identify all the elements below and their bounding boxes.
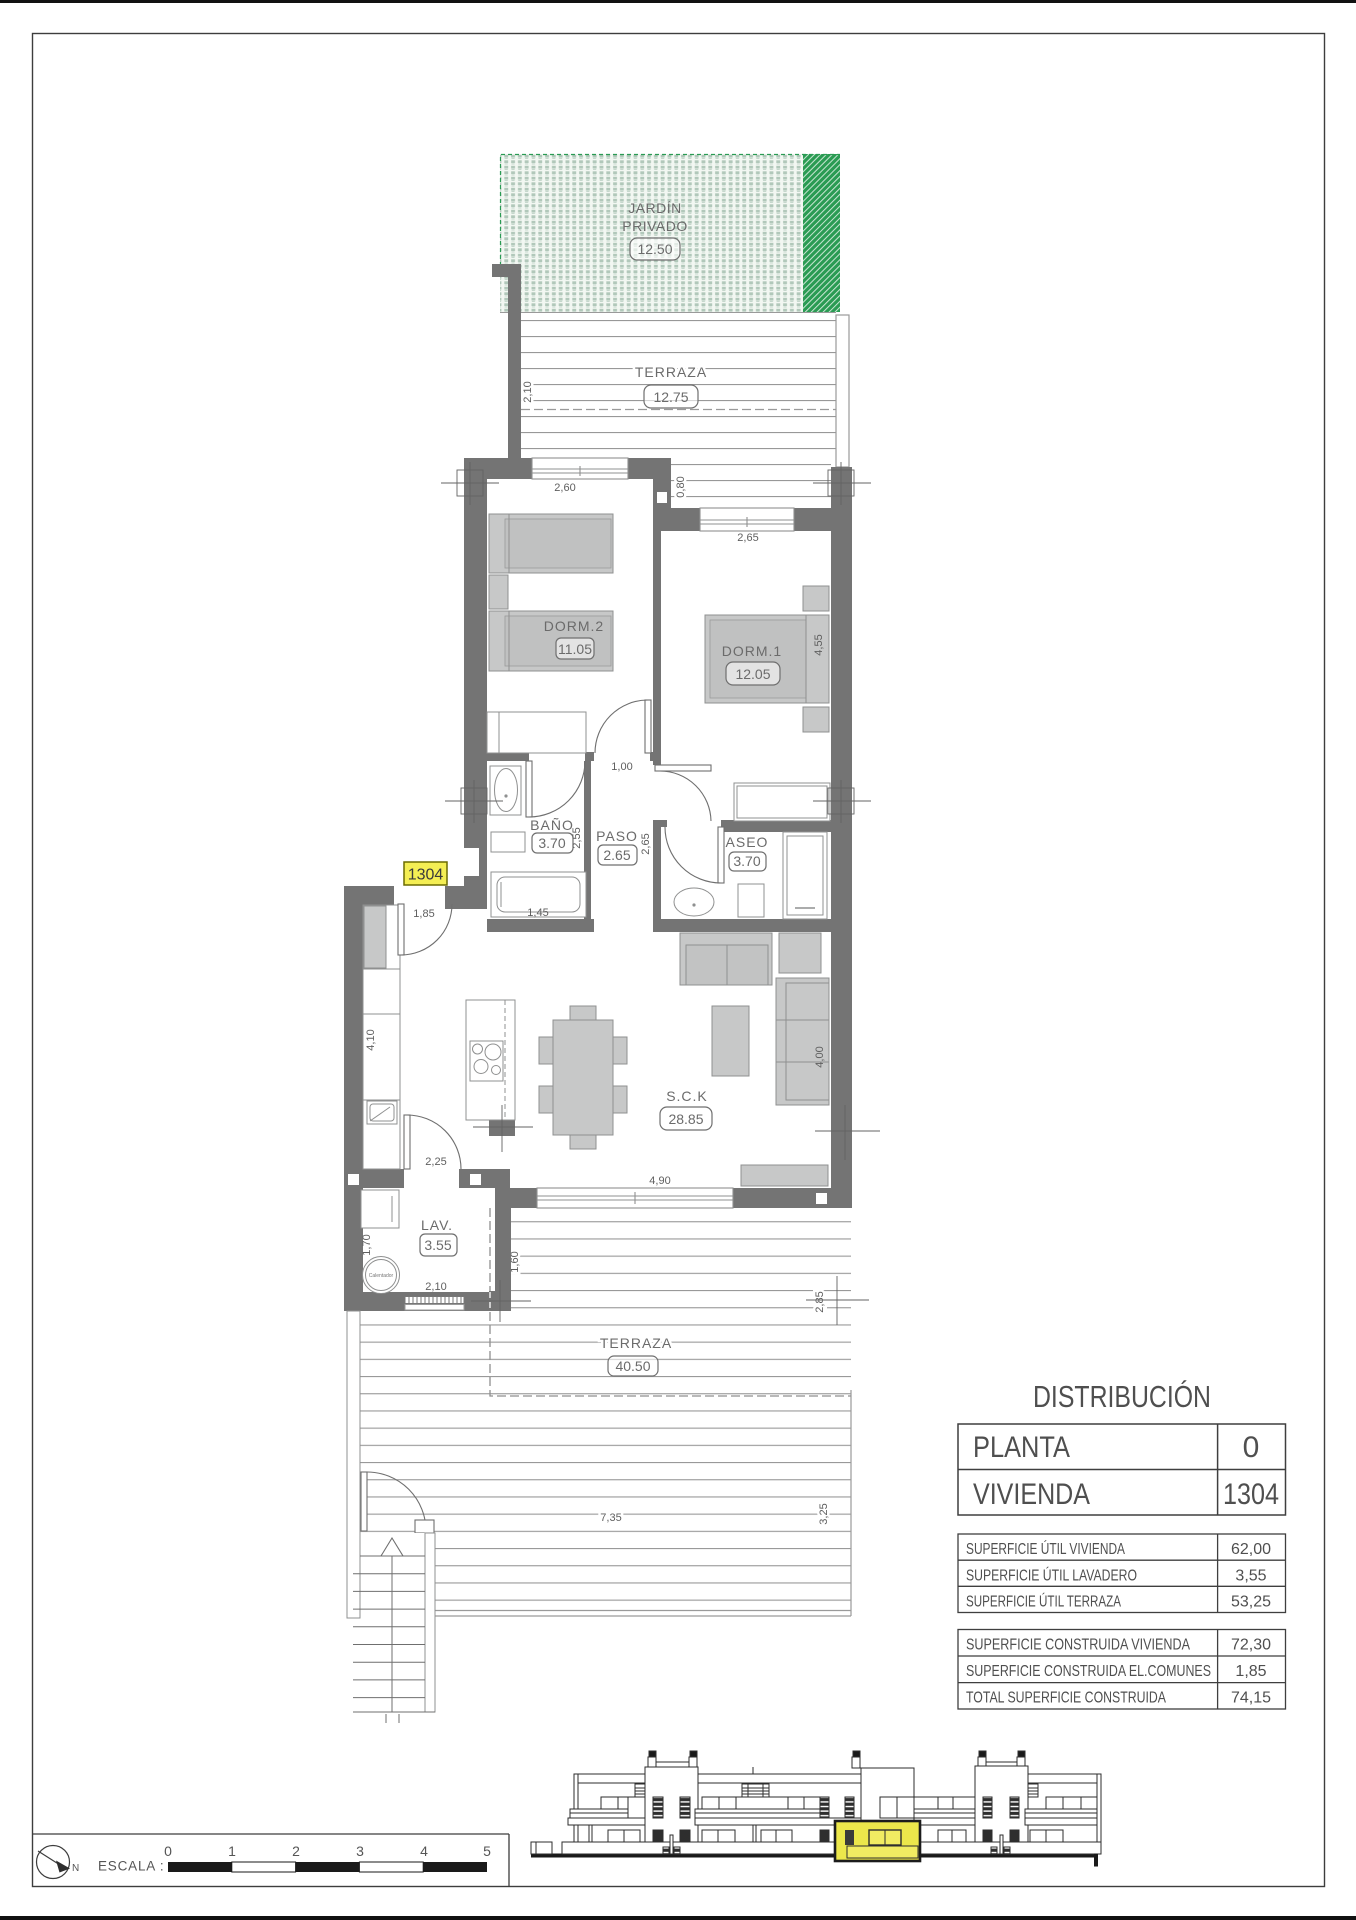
svg-text:ESCALA :: ESCALA : [98, 1859, 164, 1874]
svg-text:62,00: 62,00 [1231, 1541, 1271, 1558]
svg-text:12.50: 12.50 [637, 241, 672, 257]
svg-text:3,25: 3,25 [818, 1503, 830, 1524]
svg-text:0: 0 [1243, 1431, 1260, 1464]
svg-text:74,15: 74,15 [1231, 1689, 1271, 1706]
svg-text:4,90: 4,90 [649, 1175, 670, 1187]
svg-text:53,25: 53,25 [1231, 1594, 1271, 1611]
svg-text:2,85: 2,85 [814, 1291, 826, 1312]
svg-text:4,10: 4,10 [365, 1029, 377, 1050]
svg-text:SUPERFICIE ÚTIL VIVIENDA: SUPERFICIE ÚTIL VIVIENDA [966, 1539, 1125, 1558]
svg-text:N: N [72, 1863, 79, 1874]
svg-text:Calentador: Calentador [369, 1273, 394, 1279]
svg-text:3.55: 3.55 [424, 1237, 451, 1253]
svg-text:28.85: 28.85 [668, 1111, 703, 1127]
svg-text:1,85: 1,85 [413, 908, 434, 920]
svg-text:2,10: 2,10 [522, 381, 534, 402]
svg-text:LAV.: LAV. [421, 1217, 453, 1233]
svg-text:S.C.K: S.C.K [666, 1088, 708, 1104]
svg-text:2.65: 2.65 [603, 847, 630, 863]
svg-text:1304: 1304 [1223, 1478, 1279, 1511]
svg-text:1,00: 1,00 [611, 761, 632, 773]
svg-text:4,55: 4,55 [813, 634, 825, 655]
svg-text:PLANTA: PLANTA [973, 1431, 1070, 1464]
svg-text:1304: 1304 [408, 867, 444, 884]
svg-text:VIVIENDA: VIVIENDA [973, 1478, 1090, 1511]
svg-text:2,65: 2,65 [737, 532, 758, 544]
svg-text:DISTRIBUCIÓN: DISTRIBUCIÓN [1033, 1379, 1211, 1414]
svg-text:1,85: 1,85 [1235, 1663, 1266, 1680]
svg-text:72,30: 72,30 [1231, 1637, 1271, 1654]
svg-text:40.50: 40.50 [615, 1358, 650, 1374]
svg-text:SUPERFICIE CONSTRUIDA EL.COMUN: SUPERFICIE CONSTRUIDA EL.COMUNES [966, 1663, 1211, 1680]
svg-text:SUPERFICIE ÚTIL TERRAZA: SUPERFICIE ÚTIL TERRAZA [966, 1592, 1121, 1611]
svg-text:1: 1 [228, 1843, 236, 1859]
svg-text:0: 0 [164, 1843, 172, 1859]
svg-text:3,55: 3,55 [1235, 1567, 1266, 1584]
svg-text:DORM.2: DORM.2 [544, 618, 604, 634]
svg-text:JARDÍN: JARDÍN [628, 200, 682, 216]
svg-text:0,80: 0,80 [675, 476, 687, 497]
svg-text:SUPERFICIE ÚTIL LAVADERO: SUPERFICIE ÚTIL LAVADERO [966, 1565, 1137, 1584]
svg-text:12.75: 12.75 [653, 389, 688, 405]
svg-text:TERRAZA: TERRAZA [635, 364, 707, 380]
svg-text:PASO: PASO [596, 828, 638, 844]
svg-text:BAÑO: BAÑO [530, 817, 574, 833]
svg-text:2,65: 2,65 [640, 833, 652, 854]
svg-text:12.05: 12.05 [735, 666, 770, 682]
svg-text:TERRAZA: TERRAZA [600, 1335, 672, 1351]
svg-text:ASEO: ASEO [726, 834, 769, 850]
svg-text:1,45: 1,45 [527, 907, 548, 919]
svg-text:4,00: 4,00 [814, 1046, 826, 1067]
svg-text:7,35: 7,35 [600, 1512, 621, 1524]
svg-text:2,55: 2,55 [571, 827, 583, 848]
svg-text:DORM.1: DORM.1 [722, 643, 782, 659]
svg-text:5: 5 [483, 1843, 491, 1859]
svg-text:2: 2 [292, 1843, 300, 1859]
svg-text:3: 3 [356, 1843, 364, 1859]
svg-text:2,25: 2,25 [425, 1156, 446, 1168]
svg-text:2,10: 2,10 [425, 1281, 446, 1293]
svg-text:3.70: 3.70 [538, 835, 565, 851]
svg-text:1,70: 1,70 [361, 1234, 373, 1255]
svg-text:3.70: 3.70 [733, 853, 760, 869]
svg-text:SUPERFICIE CONSTRUIDA VIVIENDA: SUPERFICIE CONSTRUIDA VIVIENDA [966, 1637, 1190, 1654]
svg-text:PRIVADO: PRIVADO [622, 218, 687, 234]
svg-text:11.05: 11.05 [558, 641, 592, 657]
svg-text:2,60: 2,60 [554, 482, 575, 494]
svg-text:TOTAL SUPERFICIE CONSTRUIDA: TOTAL SUPERFICIE CONSTRUIDA [966, 1689, 1166, 1706]
svg-text:4: 4 [420, 1843, 428, 1859]
